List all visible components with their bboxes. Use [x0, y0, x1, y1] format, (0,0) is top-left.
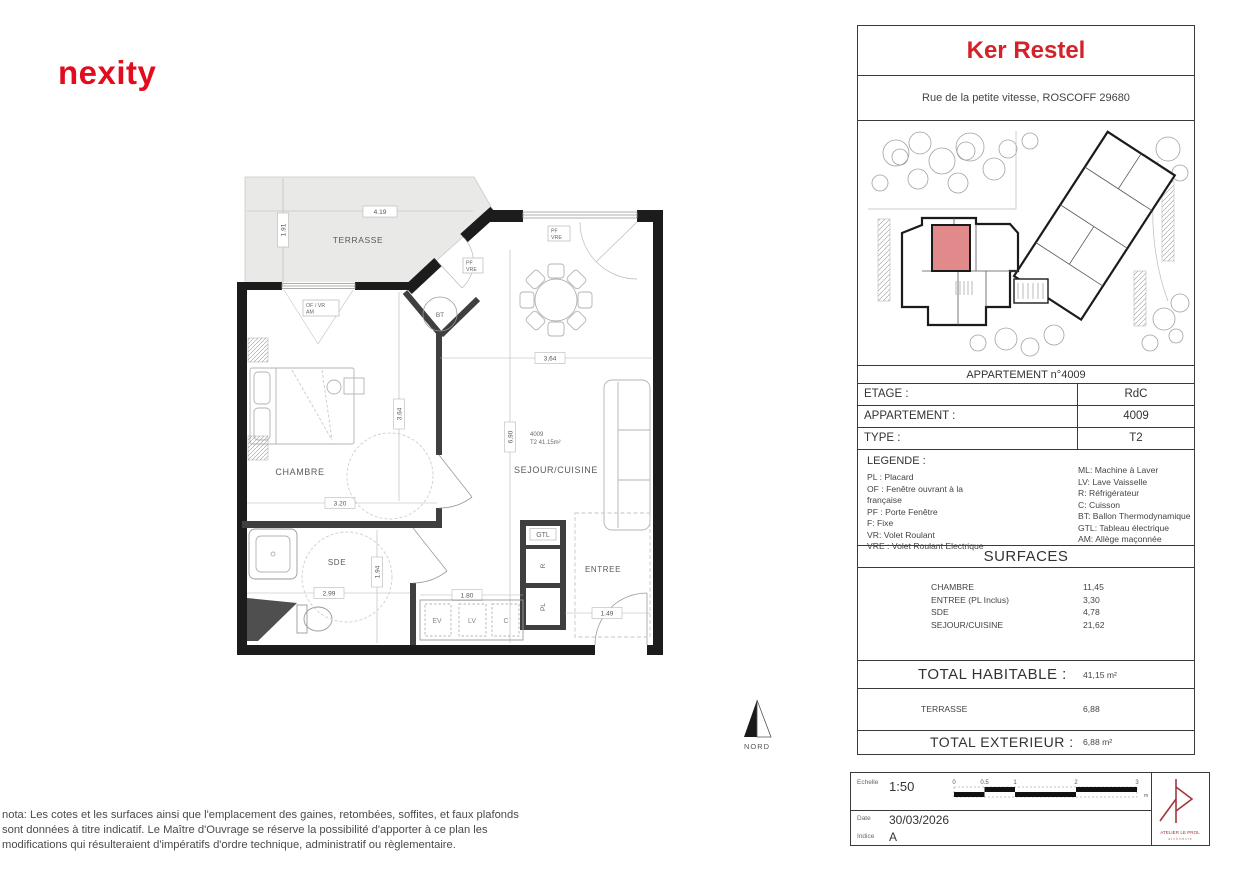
site-plan-drawing: [858, 121, 1194, 364]
surface-row: SDE 4,78: [858, 607, 1194, 620]
dim-sde-width: 2.99: [323, 591, 336, 598]
nexity-logo: nexity: [58, 54, 156, 92]
dishwasher-label: LV: [468, 618, 476, 625]
legend-item: BT: Ballon Thermodynamique: [1078, 511, 1192, 523]
legend-section: LEGENDE : PL : Placard OF : Fenêtre ouvr…: [858, 450, 1194, 546]
surfaces-heading: SURFACES: [858, 546, 1194, 568]
apartment-caption: APPARTEMENT n°4009: [858, 366, 1194, 384]
architect-logo-cell: ATELIER LE PROL a r c h i t e c t e: [1151, 773, 1209, 845]
floorplan-document: 4.19 1.91 3.20 3.64 3,64 6,90 2.99 1.94: [0, 0, 1240, 876]
gtl-label: GTL: [536, 532, 550, 539]
bt-label: BT: [436, 312, 444, 319]
legend-item: PL : Placard: [867, 472, 989, 484]
info-row-appartement: APPARTEMENT : 4009: [858, 406, 1194, 428]
dim-sejour-height: 6,90: [508, 430, 515, 443]
date-value: 30/03/2026: [889, 813, 949, 827]
scale-tick: 0: [952, 780, 956, 786]
scale-tick: 1: [1013, 780, 1017, 786]
surface-room-area: 4,78: [1083, 607, 1100, 617]
index-label: Indice: [857, 833, 874, 840]
index-value: A: [889, 830, 897, 844]
project-title: Ker Restel: [858, 26, 1194, 76]
architect-subtitle: a r c h i t e c t e: [1168, 837, 1191, 841]
scale-bar: 0 0.5 1 2 3 m: [946, 775, 1151, 809]
sejour-window-tag-2: VRE: [551, 235, 562, 241]
etage-label: ETAGE :: [858, 384, 1077, 405]
legend-item: OF : Fenêtre ouvrant à la française: [867, 484, 989, 507]
legend-item: PF : Porte Fenêtre: [867, 507, 989, 519]
legend-item: LV: Lave Vaisselle: [1078, 477, 1192, 489]
type-label: TYPE :: [858, 428, 1077, 449]
date-index-rows: Date 30/03/2026 Indice A: [851, 811, 1151, 846]
terrasse-area: 6,88: [1083, 704, 1100, 714]
sde-label: SDE: [328, 558, 346, 567]
scale-tick: 0.5: [980, 780, 989, 786]
scale-unit: m: [1144, 793, 1148, 799]
sink-label: EV: [432, 618, 442, 625]
surfaces-list: CHAMBRE 11,45 ENTREE (PL Inclus) 3,30 SD…: [858, 568, 1194, 661]
legend-right-column: ML: Machine à Laver LV: Lave Vaisselle R…: [1078, 465, 1192, 546]
surface-row: SEJOUR/CUISINE 21,62: [858, 620, 1194, 633]
entree-label: ENTREE: [585, 565, 621, 574]
legend-left-column: PL : Placard OF : Fenêtre ouvrant à la f…: [867, 472, 989, 553]
highlighted-unit: [932, 225, 970, 271]
unit-type-label: T2 41.15m²: [530, 440, 561, 446]
total-exterior-value: 6,88 m²: [1083, 731, 1112, 753]
surface-room-area: 11,45: [1083, 582, 1104, 592]
dim-sejour-width: 3,64: [544, 356, 557, 363]
terrasse-label: TERRASSE: [333, 235, 384, 245]
total-exterior-label: TOTAL EXTERIEUR :: [930, 731, 1074, 753]
surface-room-name: SEJOUR/CUISINE: [931, 620, 1003, 630]
scale-value: 1:50: [889, 779, 914, 794]
surface-row: CHAMBRE 11,45: [858, 582, 1194, 595]
total-habitable-value: 41,15 m²: [1083, 661, 1117, 689]
dim-sde-height: 1.94: [375, 565, 382, 578]
architect-name: ATELIER LE PROL: [1160, 830, 1200, 835]
appartement-label: APPARTEMENT :: [858, 406, 1077, 427]
title-block: Echelle 1:50 0 0.5 1 2 3 m Date 30/: [850, 772, 1210, 846]
dim-chambre-height: 3.64: [397, 407, 404, 420]
scale-tick: 2: [1074, 780, 1078, 786]
info-row-etage: ETAGE : RdC: [858, 384, 1194, 406]
surface-room-area: 3,30: [1083, 595, 1100, 605]
architect-logo-icon: ATELIER LE PROL a r c h i t e c t e: [1152, 773, 1208, 845]
surface-room-name: SDE: [931, 607, 949, 617]
legend-item: F: Fixe: [867, 518, 989, 530]
type-value: T2: [1077, 428, 1194, 449]
north-label: NORD: [744, 742, 770, 751]
legend-item: C: Cuisson: [1078, 500, 1192, 512]
dim-chambre-width: 3.20: [334, 501, 347, 508]
legend-item: ML: Machine à Laver: [1078, 465, 1192, 477]
terrace-door-tag-1: PF: [466, 261, 474, 267]
closet-label: PL: [540, 603, 547, 611]
total-exterior-row: TOTAL EXTERIEUR : 6,88 m²: [858, 731, 1194, 754]
site-building-left: [902, 218, 1018, 325]
etage-value: RdC: [1077, 384, 1194, 405]
info-panel: Ker Restel Rue de la petite vitesse, ROS…: [857, 25, 1195, 755]
surface-room-area: 21,62: [1083, 620, 1105, 630]
fridge-label: R: [540, 563, 547, 568]
total-habitable-label: TOTAL HABITABLE :: [918, 661, 1067, 689]
project-address: Rue de la petite vitesse, ROSCOFF 29680: [858, 76, 1194, 121]
sejour-label: SEJOUR/CUISINE: [514, 465, 598, 475]
scale-label: Echelle: [857, 779, 878, 786]
terrace-door-tag-2: VRE: [466, 267, 477, 273]
info-row-type: TYPE : T2: [858, 428, 1194, 450]
site-link: [1014, 279, 1048, 303]
appartement-value: 4009: [1077, 406, 1194, 427]
surface-room-name: CHAMBRE: [931, 582, 974, 592]
dim-terrace-height: 1.91: [281, 223, 288, 236]
site-key-plan: [858, 121, 1194, 366]
legend-item: VR: Volet Roulant: [867, 530, 989, 542]
cooktop-label: C: [503, 618, 508, 625]
north-arrow-icon: NORD: [744, 700, 771, 751]
scale-row: Echelle 1:50 0 0.5 1 2 3 m: [851, 773, 1151, 811]
dim-terrace-width: 4.19: [374, 209, 387, 216]
terrasse-row: TERRASSE 6,88: [858, 689, 1194, 731]
date-label: Date: [857, 815, 871, 822]
dim-kitchen-width: 1.80: [461, 593, 474, 600]
unit-number-label: 4009: [530, 432, 544, 438]
total-habitable-row: TOTAL HABITABLE : 41,15 m²: [858, 661, 1194, 689]
dim-entree-width: 1.49: [601, 611, 614, 618]
floor-plan: 4.19 1.91 3.20 3.64 3,64 6,90 2.99 1.94: [0, 0, 840, 780]
nota-text: nota: Les cotes et les surfaces ainsi qu…: [2, 808, 526, 853]
chambre-window-tag-1: OF / VR: [306, 303, 325, 309]
terrasse-name: TERRASSE: [921, 704, 967, 714]
legend-heading: LEGENDE :: [867, 455, 926, 467]
legend-item: GTL: Tableau électrique: [1078, 523, 1192, 535]
chambre-window-tag-2: AM: [306, 310, 314, 316]
surface-room-name: ENTREE (PL Inclus): [931, 595, 1009, 605]
chambre-label: CHAMBRE: [275, 467, 324, 477]
legend-item: AM: Allège maçonnée: [1078, 534, 1192, 546]
equipment-labels: BT GTL R PL EV LV C: [423, 297, 556, 625]
sejour-window-tag-1: PF: [551, 229, 559, 235]
legend-item: R: Réfrigérateur: [1078, 488, 1192, 500]
scale-tick: 3: [1135, 780, 1139, 786]
surface-row: ENTREE (PL Inclus) 3,30: [858, 595, 1194, 608]
